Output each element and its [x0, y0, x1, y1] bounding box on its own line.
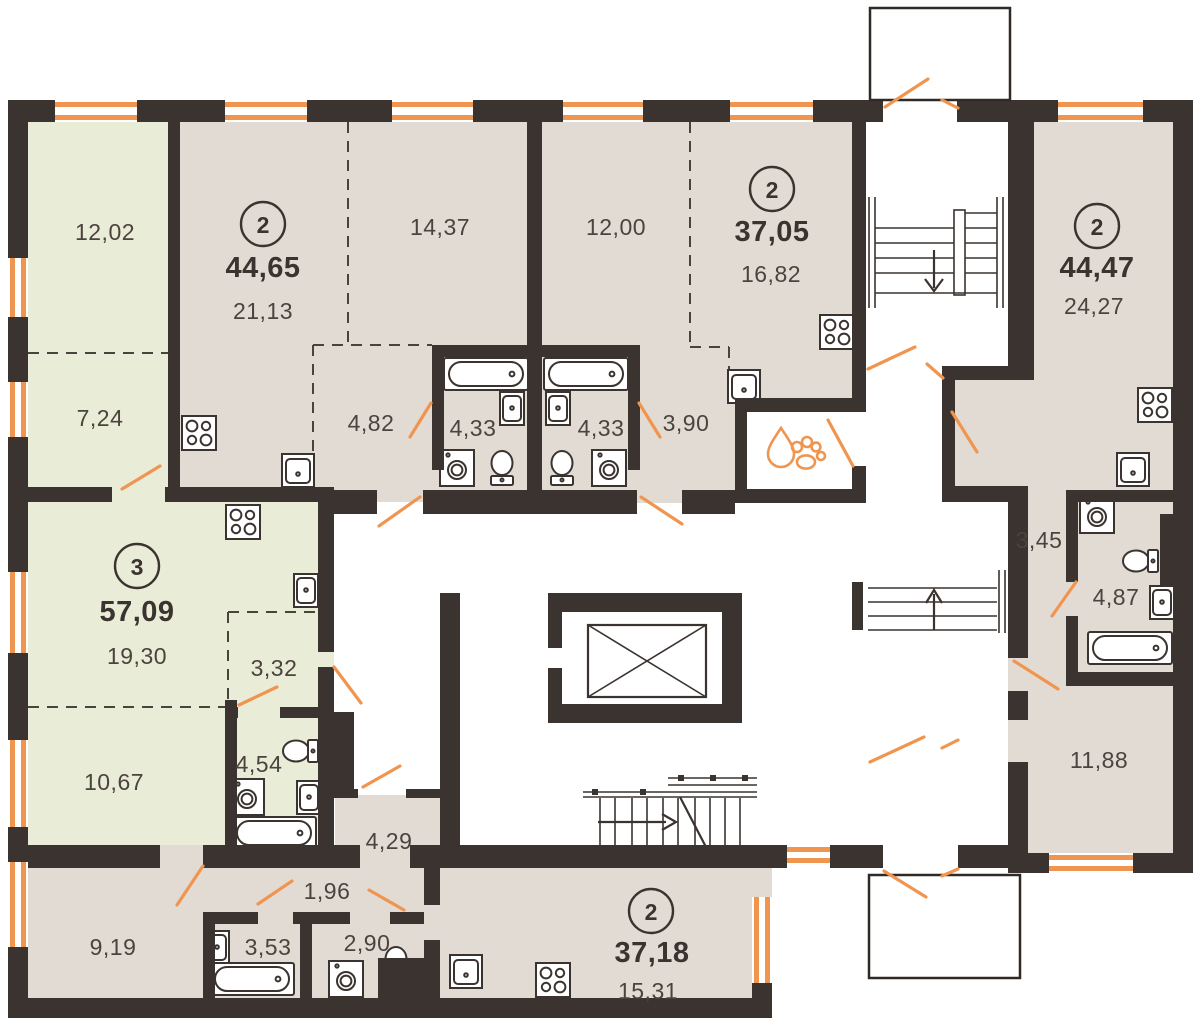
stove-icon: [1138, 388, 1172, 422]
room-area-label: 10,67: [84, 769, 144, 795]
window-icon: [8, 862, 28, 947]
top-entrance-vestibule: [870, 8, 1010, 100]
room-area-label: 4,82: [348, 410, 395, 436]
room-area-label: 9,19: [90, 934, 137, 960]
stairs-icon: [869, 197, 1003, 308]
toilet-icon: [551, 451, 573, 485]
room-area-label: 3,53: [245, 934, 292, 960]
toilet-icon: [283, 740, 318, 762]
apartment-badge-number: 2: [766, 177, 779, 203]
room-area-label: 19,30: [107, 643, 167, 669]
kitchen-sink-icon: [450, 955, 482, 988]
washing-machine-icon: [592, 450, 626, 486]
room-area-label: 12,00: [586, 214, 646, 240]
window-icon: [8, 572, 28, 653]
small-sink-icon: [500, 392, 524, 425]
room-area-label: 21,13: [233, 298, 293, 324]
room-area-label: 4,54: [236, 751, 283, 777]
room-area-label: 3,32: [251, 655, 298, 681]
washing-machine-icon: [329, 961, 363, 997]
apartment-badge-number: 2: [645, 899, 658, 925]
toilet-icon: [1123, 550, 1158, 572]
bathtub-icon: [210, 963, 294, 995]
small-sink-icon: [1150, 586, 1174, 619]
window-icon: [225, 100, 307, 122]
bottom-entrance-vestibule: [869, 875, 1020, 978]
kitchen-sink-icon: [282, 454, 314, 487]
floor-plan-page: 357,0912,027,2419,303,324,5410,67244,652…: [0, 0, 1201, 1026]
bathtub-icon: [232, 817, 316, 849]
toilet-icon: [491, 451, 513, 485]
window-icon: [787, 845, 830, 868]
room-area-label: 3,90: [663, 410, 710, 436]
room-area-label: 4,33: [450, 415, 497, 441]
stove-icon: [226, 505, 260, 539]
kitchen-sink-icon: [294, 574, 318, 607]
apartment-badge-number: 3: [131, 554, 144, 580]
room-area-label: 2,90: [344, 930, 391, 956]
window-icon: [8, 382, 28, 437]
bathtub-icon: [1088, 632, 1172, 664]
room-area-label: 11,88: [1070, 747, 1128, 773]
window-icon: [1058, 100, 1143, 122]
apartment-total-area: 37,18: [614, 937, 689, 969]
washing-machine-icon: [1080, 497, 1114, 533]
room-area-label: 4,87: [1093, 584, 1140, 610]
stove-icon: [536, 963, 570, 997]
window-icon: [730, 100, 813, 122]
apartment-badge-number: 2: [1091, 214, 1104, 240]
floor-plan-svg: 357,0912,027,2419,303,324,5410,67244,652…: [0, 0, 1201, 1026]
room-area-label: 3,45: [1016, 527, 1063, 553]
window-icon: [8, 258, 28, 317]
window-icon: [563, 100, 643, 122]
apartment-total-area: 57,09: [99, 596, 174, 628]
window-icon: [392, 100, 473, 122]
room-area-label: 12,02: [75, 219, 135, 245]
apartment-badge-number: 2: [257, 212, 270, 238]
bathtub-icon: [444, 358, 528, 390]
room-area-label: 16,82: [741, 261, 801, 287]
washing-machine-icon: [440, 450, 474, 486]
apartment-total-area: 37,05: [734, 216, 809, 248]
bathtub-icon: [544, 358, 628, 390]
small-sink-icon: [297, 781, 321, 814]
window-icon: [752, 897, 772, 983]
room-area-label: 4,29: [366, 828, 413, 854]
window-icon: [1049, 853, 1133, 873]
room-area-label: 1,96: [304, 878, 351, 904]
stairs-icon: [583, 775, 757, 849]
room-area-label: 24,27: [1064, 293, 1124, 319]
apartment-total-area: 44,65: [225, 252, 300, 284]
room-area-label: 15,31: [618, 978, 678, 1004]
room-area-label: 14,37: [410, 214, 470, 240]
room-area-label: 4,33: [578, 415, 625, 441]
window-icon: [8, 740, 28, 827]
stove-icon: [820, 315, 854, 349]
window-icon: [55, 100, 137, 122]
apartment-total-area: 44,47: [1059, 252, 1134, 284]
room-area-label: 7,24: [77, 405, 124, 431]
elevator-icon: [588, 625, 706, 697]
stove-icon: [182, 416, 216, 450]
small-sink-icon: [546, 392, 570, 425]
stairs-icon: [868, 570, 1005, 633]
kitchen-sink-icon: [1117, 453, 1149, 486]
